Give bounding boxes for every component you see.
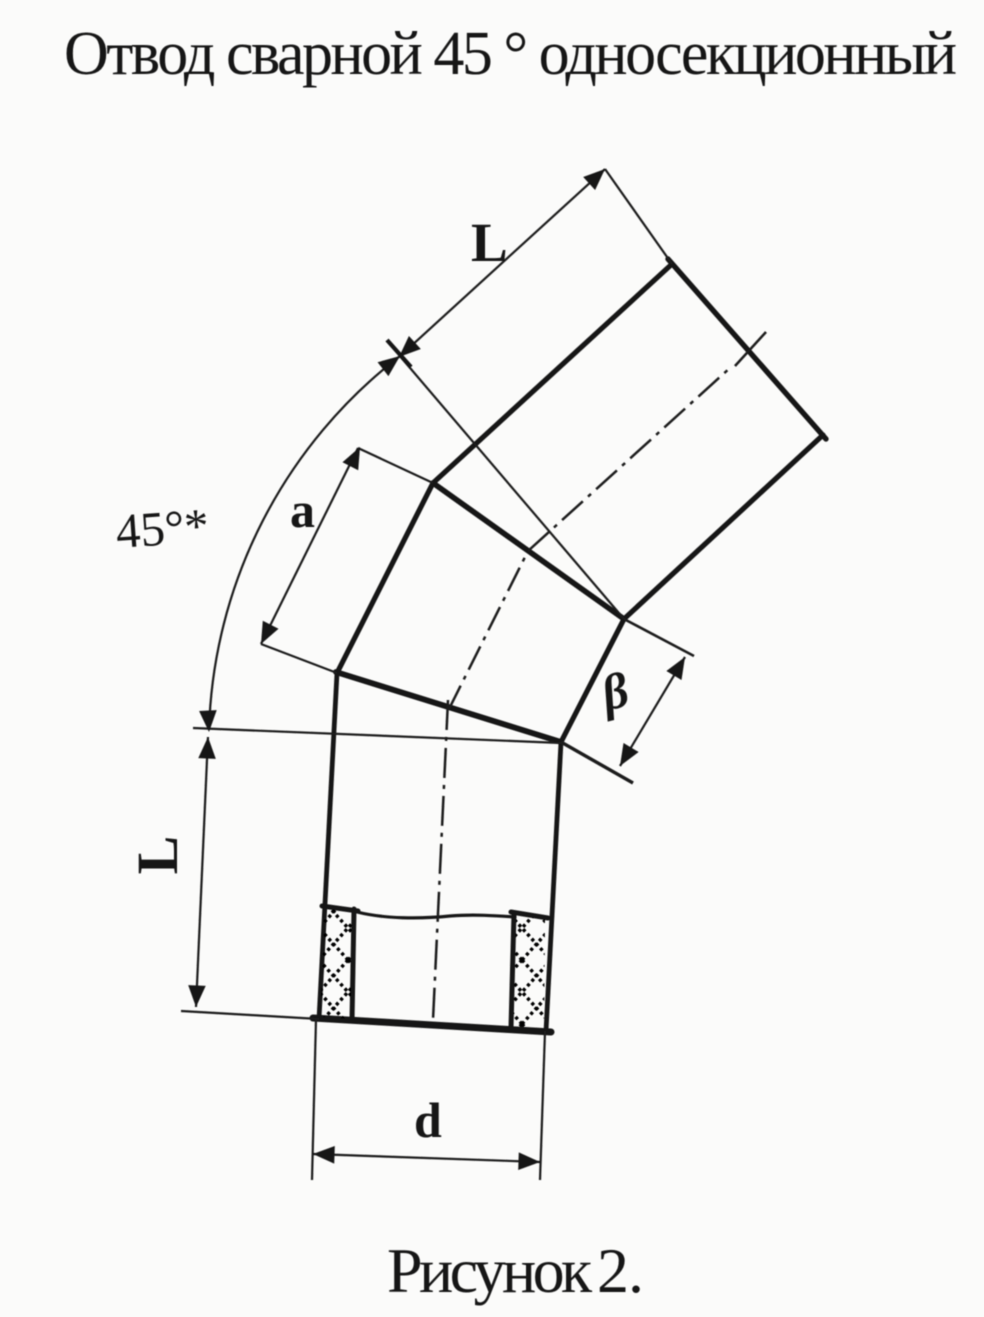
svg-text:L: L bbox=[471, 212, 508, 273]
svg-text:d: d bbox=[414, 1092, 442, 1148]
svg-text:β: β bbox=[594, 661, 635, 722]
svg-text:L: L bbox=[125, 836, 190, 875]
svg-text:a: a bbox=[290, 482, 315, 538]
svg-text:Рисунок2.: Рисунок2. bbox=[387, 1235, 643, 1306]
svg-text:45°*: 45°* bbox=[114, 498, 211, 559]
svg-text:Отвод сварной 45 ° односекцион: Отвод сварной 45 ° односекционный bbox=[64, 20, 956, 88]
